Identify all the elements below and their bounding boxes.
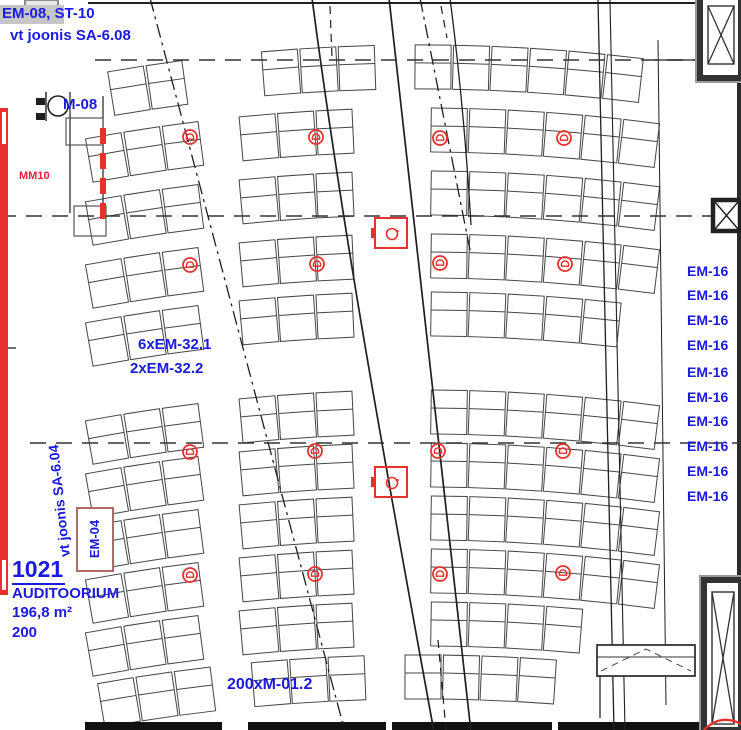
- label-header-ref: vt joonis SA-6.08: [10, 28, 131, 44]
- seat: [618, 507, 659, 555]
- seat: [581, 178, 621, 225]
- label-em16-8: EM-16: [687, 438, 728, 454]
- seat: [442, 655, 479, 700]
- seat: [468, 235, 506, 280]
- seat: [431, 443, 468, 488]
- seat: [543, 175, 582, 222]
- seat: [480, 656, 518, 702]
- label-em16-1: EM-16: [687, 263, 728, 279]
- seat: [239, 114, 279, 161]
- seat: [618, 560, 659, 608]
- seat: [506, 498, 545, 544]
- label-m012: 200xM-01.2: [227, 676, 312, 693]
- speaker-symbol: [433, 131, 447, 145]
- seat: [239, 298, 279, 345]
- seat: [506, 236, 545, 282]
- seat: [468, 293, 506, 338]
- label-em16-4: EM-16: [687, 337, 728, 353]
- seat: [506, 551, 545, 597]
- seat: [328, 656, 366, 701]
- seat: [85, 133, 128, 183]
- seat: [124, 568, 166, 617]
- em04-tag-box: EM-04: [76, 507, 114, 572]
- seat: [415, 45, 451, 89]
- seat: [124, 190, 166, 239]
- auditorium-floor-plan: EM-08, ST-10 vt joonis SA-6.08 M-08 MM10…: [0, 0, 741, 730]
- seat: [278, 446, 317, 492]
- seat: [506, 110, 545, 156]
- seat: [338, 45, 376, 90]
- seat: [162, 563, 203, 611]
- seat: [278, 174, 317, 220]
- seat: [543, 296, 582, 343]
- label-m08: M-08: [63, 97, 97, 113]
- speaker-symbol: [183, 445, 197, 459]
- plan-drawing-canvas: [0, 0, 741, 730]
- seat: [316, 391, 354, 437]
- seat: [431, 171, 468, 216]
- seat: [136, 672, 178, 721]
- seat: [162, 457, 203, 505]
- label-em16-3: EM-16: [687, 312, 728, 328]
- seat: [239, 502, 279, 549]
- seat: [124, 515, 166, 564]
- seat: [431, 108, 468, 153]
- seat: [543, 500, 582, 547]
- seat: [468, 444, 506, 489]
- seat: [278, 605, 317, 651]
- speaker-symbol: [556, 444, 570, 458]
- seat: [316, 293, 354, 339]
- seat: [162, 616, 203, 664]
- seat: [581, 450, 621, 497]
- seat: [316, 603, 354, 649]
- seat: [162, 404, 203, 452]
- seat: [124, 253, 166, 302]
- speaker-symbol: [557, 131, 571, 145]
- label-em16-7: EM-16: [687, 413, 728, 429]
- seat: [431, 549, 468, 594]
- label-em32-1: 6xEM-32.1: [138, 337, 211, 353]
- seat: [468, 109, 506, 154]
- room-name: AUDITOORIUM: [12, 586, 119, 602]
- speaker-symbol: [558, 257, 572, 271]
- seat: [603, 55, 644, 103]
- label-em16-10: EM-16: [687, 488, 728, 504]
- seat: [85, 196, 128, 246]
- label-em16-6: EM-16: [687, 389, 728, 405]
- seat: [543, 394, 582, 441]
- seat: [278, 499, 317, 545]
- label-header-tag: EM-08, ST-10: [2, 6, 95, 22]
- seat: [506, 604, 545, 650]
- speaker-symbol: [183, 568, 197, 582]
- seat: [618, 401, 659, 449]
- speaker-symbol: [433, 567, 447, 581]
- seat: [85, 259, 128, 309]
- seat: [278, 393, 317, 439]
- riser-bar: [0, 108, 8, 595]
- seat: [506, 173, 545, 219]
- seat: [543, 606, 582, 653]
- speaker-symbol: [183, 130, 197, 144]
- seat: [506, 445, 545, 491]
- riser-dash: [100, 128, 106, 144]
- seat: [146, 61, 188, 110]
- seat: [431, 602, 468, 647]
- seat: [239, 177, 279, 224]
- seat: [174, 667, 215, 715]
- seat: [162, 185, 203, 233]
- label-em16-9: EM-16: [687, 463, 728, 479]
- seat: [518, 658, 557, 704]
- seat: [239, 240, 279, 287]
- seat: [278, 552, 317, 598]
- seat: [278, 295, 317, 341]
- seat: [506, 392, 545, 438]
- seat: [108, 66, 151, 115]
- seat: [581, 556, 621, 603]
- seat: [239, 449, 279, 496]
- seat: [162, 510, 203, 558]
- seat: [527, 48, 566, 94]
- seat: [581, 503, 621, 550]
- seat: [543, 553, 582, 600]
- seat: [468, 497, 506, 542]
- seat: [316, 172, 354, 218]
- riser-dash: [100, 203, 106, 219]
- label-em16-2: EM-16: [687, 287, 728, 303]
- seat: [506, 294, 545, 340]
- seat: [124, 127, 166, 176]
- seat: [581, 299, 621, 346]
- seat: [468, 172, 506, 217]
- label-em16-5: EM-16: [687, 364, 728, 380]
- label-mm10: MM10: [19, 171, 50, 183]
- seat: [239, 608, 279, 655]
- floor-box-symbol: [371, 218, 407, 248]
- seat: [490, 46, 528, 92]
- seat: [618, 182, 659, 230]
- seat: [98, 678, 141, 727]
- seat: [431, 292, 468, 337]
- label-em04: EM-04: [88, 520, 102, 558]
- seat: [581, 397, 621, 444]
- seat: [239, 555, 279, 602]
- riser-dash: [100, 153, 106, 169]
- seat: [124, 621, 166, 670]
- seat: [405, 655, 441, 699]
- room-area: 196,8 m²: [12, 605, 72, 621]
- seat: [618, 454, 659, 502]
- speaker-symbol: [308, 444, 322, 458]
- seat: [162, 122, 203, 170]
- seat: [85, 627, 128, 677]
- speaker-symbol: [183, 258, 197, 272]
- seat: [162, 248, 203, 296]
- seat: [278, 111, 317, 157]
- seat: [239, 396, 279, 443]
- seat: [543, 447, 582, 494]
- seat: [85, 415, 128, 465]
- speaker-symbol: [431, 444, 445, 458]
- label-em32-2: 2xEM-32.2: [130, 361, 203, 377]
- riser-dash: [100, 178, 106, 194]
- seat: [468, 603, 506, 648]
- seat: [261, 49, 300, 96]
- seat: [85, 317, 128, 367]
- seat: [468, 391, 506, 436]
- seat: [124, 409, 166, 458]
- seat: [618, 245, 659, 293]
- seat: [468, 550, 506, 595]
- speaker-symbol: [433, 256, 447, 270]
- seat: [618, 119, 659, 167]
- seat: [316, 497, 354, 543]
- room-capacity: 200: [12, 625, 37, 641]
- room-number: 1021: [12, 557, 65, 585]
- seat: [431, 390, 468, 435]
- seat: [124, 462, 166, 511]
